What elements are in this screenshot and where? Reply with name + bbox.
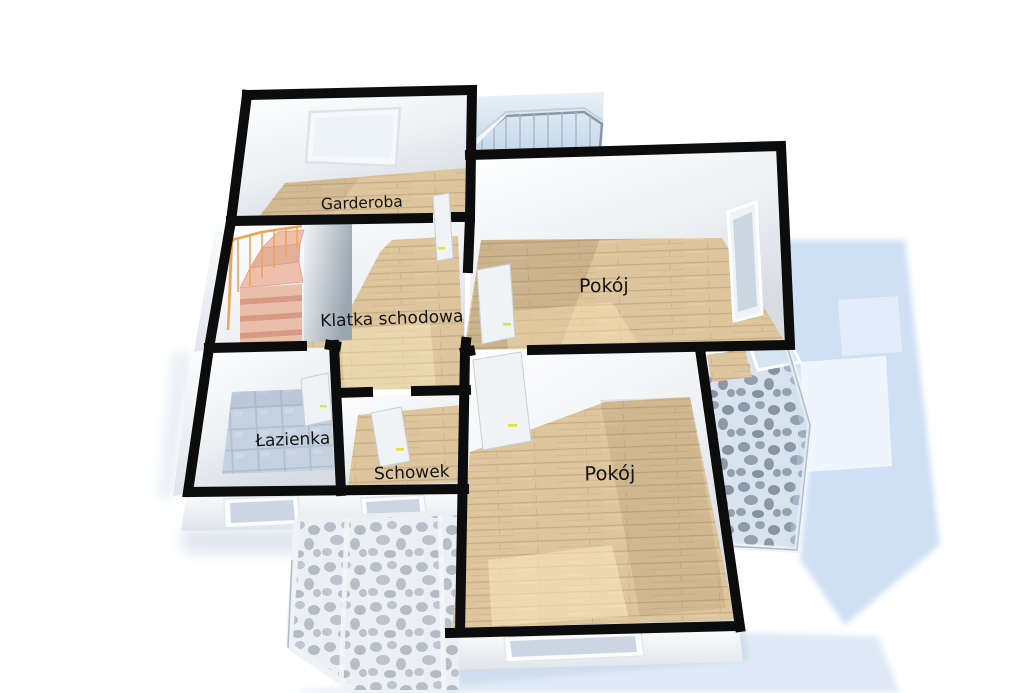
label-lazienka: Łazienka bbox=[254, 429, 330, 452]
door-handle bbox=[320, 405, 327, 407]
window-exterior-1 bbox=[224, 496, 300, 528]
top-glass-balcony bbox=[463, 92, 604, 153]
label-pokoj-dolny: Pokój bbox=[584, 462, 635, 486]
door-handle bbox=[503, 323, 511, 326]
label-schowek: Schowek bbox=[374, 462, 450, 485]
shadow-light-patch-window bbox=[800, 356, 892, 472]
door-garderoba bbox=[433, 193, 453, 261]
floorplan-3d-render: Garderoba Klatka schodowa Pokój Pokój Ła… bbox=[0, 0, 1024, 693]
klatka-floor-light bbox=[340, 322, 436, 390]
window-garderoba bbox=[306, 108, 400, 166]
right-bay-wood-strip bbox=[707, 350, 752, 382]
label-pokoj-gorny: Pokój bbox=[579, 275, 629, 298]
bottom-bay-window bbox=[288, 513, 459, 690]
door-handle bbox=[508, 424, 517, 427]
door-lazienka bbox=[301, 373, 332, 426]
label-garderoba: Garderoba bbox=[321, 193, 403, 214]
door-pokoj-gorny bbox=[477, 264, 515, 344]
shadow-light-patch-upper bbox=[838, 296, 902, 356]
door-pokoj-dolny bbox=[473, 352, 531, 450]
stair-steps bbox=[240, 284, 302, 348]
floorplan-canvas: Garderoba Klatka schodowa Pokój Pokój Ła… bbox=[0, 0, 1024, 693]
door-handle bbox=[396, 448, 404, 451]
window-exterior-3 bbox=[504, 632, 644, 662]
door-handle bbox=[438, 247, 445, 249]
window-pokoj-gorny bbox=[728, 202, 762, 321]
